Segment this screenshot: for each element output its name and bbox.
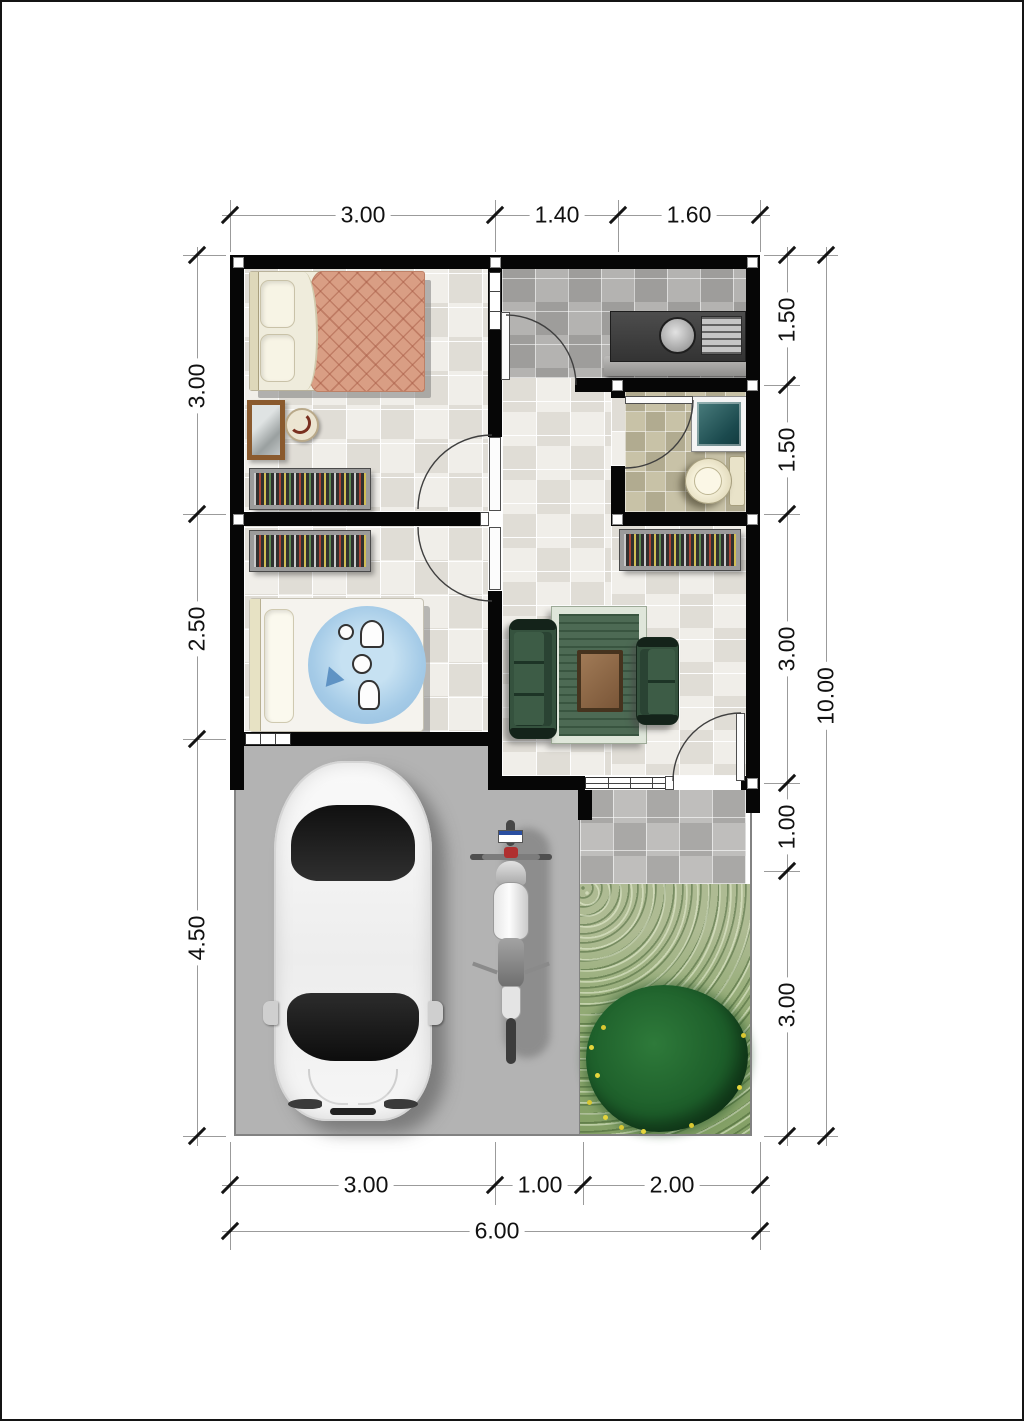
sofa-armrest bbox=[510, 620, 556, 630]
carport-terrace-divider bbox=[579, 820, 580, 1136]
toilet-seat bbox=[694, 467, 722, 495]
witness-line bbox=[183, 1136, 226, 1137]
witness-line bbox=[760, 1142, 761, 1250]
dim-bottom-total: 6.00 bbox=[470, 1219, 525, 1244]
plot-boundary-right bbox=[750, 813, 752, 1136]
floor-plan-canvas: 3.00 1.40 1.60 3.00 2.50 4.50 1.50 1.50 … bbox=[0, 0, 1024, 1421]
wardrobe bbox=[250, 531, 370, 571]
bed-pillow bbox=[260, 280, 295, 328]
witness-line bbox=[183, 255, 226, 256]
window-bedroom2 bbox=[245, 733, 291, 745]
door-leaf-front bbox=[736, 713, 745, 781]
stool bbox=[285, 408, 319, 442]
motorcycle-seat bbox=[498, 938, 524, 988]
wall-bedroom2-living bbox=[488, 591, 502, 790]
dim-right-2: 1.50 bbox=[775, 423, 800, 478]
witness-line bbox=[230, 200, 231, 252]
wall-column bbox=[747, 380, 758, 391]
dim-right-5: 3.00 bbox=[775, 978, 800, 1033]
witness-line bbox=[183, 739, 226, 740]
plot-boundary-left bbox=[234, 746, 236, 1136]
witness-line bbox=[183, 514, 226, 515]
wall-terrace-stub bbox=[578, 790, 592, 820]
wall-column bbox=[233, 514, 244, 525]
car-side-mirror bbox=[263, 1001, 278, 1025]
dim-top-3: 1.60 bbox=[662, 203, 717, 228]
dim-left-3: 4.50 bbox=[185, 911, 210, 966]
wall-column bbox=[233, 257, 244, 268]
door-leaf-bedroom2 bbox=[489, 527, 501, 590]
drainboard bbox=[701, 316, 742, 355]
dim-right-total: 10.00 bbox=[814, 662, 839, 730]
car-windshield bbox=[287, 993, 419, 1061]
wall-bathroom-bottom bbox=[611, 512, 760, 526]
car bbox=[274, 761, 432, 1121]
cartoon-figure bbox=[352, 654, 372, 674]
dim-top-2: 1.40 bbox=[530, 203, 585, 228]
dim-right-1: 1.50 bbox=[775, 293, 800, 348]
wall-column bbox=[612, 514, 623, 525]
wall-bedrooms-divider bbox=[230, 512, 488, 526]
coffee-table bbox=[577, 650, 623, 712]
sofa-armrest bbox=[637, 715, 678, 724]
dim-top-1: 3.00 bbox=[336, 203, 391, 228]
wall-column bbox=[612, 380, 623, 391]
wall-exterior-right bbox=[746, 255, 760, 813]
motorcycle-tail bbox=[501, 986, 521, 1020]
kitchen-sink bbox=[659, 317, 696, 354]
dressing-table-mirror bbox=[247, 400, 285, 460]
bed-pillow bbox=[260, 334, 295, 382]
door-frame bbox=[480, 512, 489, 526]
wall-front-left bbox=[488, 776, 585, 790]
dim-left-2: 2.50 bbox=[185, 602, 210, 657]
bed-headboard bbox=[250, 599, 261, 731]
car-headlight bbox=[288, 1099, 322, 1109]
bathroom-doorway-floor bbox=[611, 398, 625, 466]
cartoon-figure bbox=[358, 680, 380, 710]
door-frame bbox=[665, 776, 674, 790]
bed-headboard bbox=[250, 272, 259, 390]
dim-bottom-3: 2.00 bbox=[645, 1173, 700, 1198]
wardrobe bbox=[250, 469, 370, 509]
sofa-armrest bbox=[510, 728, 556, 738]
witness-line bbox=[495, 200, 496, 252]
witness-line bbox=[495, 1142, 496, 1205]
wall-column bbox=[747, 514, 758, 525]
car-grille bbox=[330, 1108, 376, 1115]
witness-line bbox=[764, 783, 800, 784]
door-leaf-bathroom bbox=[625, 396, 693, 404]
wall-kitchen-bottom bbox=[575, 378, 746, 392]
sofa-armrest bbox=[637, 638, 678, 647]
witness-line bbox=[230, 1142, 231, 1250]
shelf-cabinet bbox=[620, 530, 740, 570]
car-side-mirror bbox=[428, 1001, 443, 1025]
bed-blanket-cartoon bbox=[308, 606, 426, 724]
witness-line bbox=[764, 871, 800, 872]
double-bed bbox=[249, 271, 424, 391]
motorcycle-footpeg bbox=[472, 962, 498, 975]
sofa-three-seat bbox=[509, 619, 557, 739]
door-leaf-kitchen bbox=[501, 312, 510, 380]
cartoon-figure bbox=[338, 624, 354, 640]
witness-line bbox=[764, 514, 800, 515]
car-rear-window bbox=[291, 805, 415, 881]
motorcycle-rear-wheel bbox=[506, 1018, 516, 1064]
flower-dot bbox=[589, 1045, 594, 1050]
motorcycle-plate bbox=[498, 830, 523, 843]
sofa-two-seat bbox=[636, 637, 679, 725]
wall-column bbox=[490, 257, 501, 268]
motorcycle bbox=[466, 818, 556, 1070]
terrace-floor bbox=[580, 790, 746, 884]
window-bedroom1-kitchen bbox=[489, 272, 501, 330]
dim-right-3: 3.00 bbox=[775, 622, 800, 677]
cartoon-star bbox=[320, 663, 345, 687]
window-living-front bbox=[585, 777, 673, 789]
plot-boundary-bottom bbox=[234, 1134, 752, 1136]
bed-blanket bbox=[308, 271, 425, 392]
witness-line bbox=[764, 385, 800, 386]
cartoon-figure bbox=[360, 620, 384, 648]
bed-pillow bbox=[264, 609, 294, 723]
wall-column bbox=[747, 778, 758, 789]
motorcycle-tank bbox=[493, 882, 529, 940]
water-basin bbox=[692, 397, 746, 451]
motorcycle-accent bbox=[504, 847, 518, 858]
toilet-bowl bbox=[685, 458, 732, 504]
stool-swirl bbox=[289, 412, 311, 434]
sofa-cushions bbox=[640, 649, 675, 715]
single-bed bbox=[249, 598, 424, 732]
sofa-cushions bbox=[514, 632, 552, 726]
car-headlight bbox=[384, 1099, 418, 1109]
dim-right-4: 1.00 bbox=[775, 800, 800, 855]
dim-bottom-1: 3.00 bbox=[339, 1173, 394, 1198]
witness-line bbox=[760, 200, 761, 252]
wall-column bbox=[747, 257, 758, 268]
dim-left-1: 3.00 bbox=[185, 359, 210, 414]
dim-bottom-2: 1.00 bbox=[513, 1173, 568, 1198]
wall-right-stub bbox=[746, 790, 760, 813]
witness-line bbox=[618, 200, 619, 252]
witness-line bbox=[583, 1142, 584, 1205]
door-leaf-bedroom1 bbox=[489, 437, 501, 511]
